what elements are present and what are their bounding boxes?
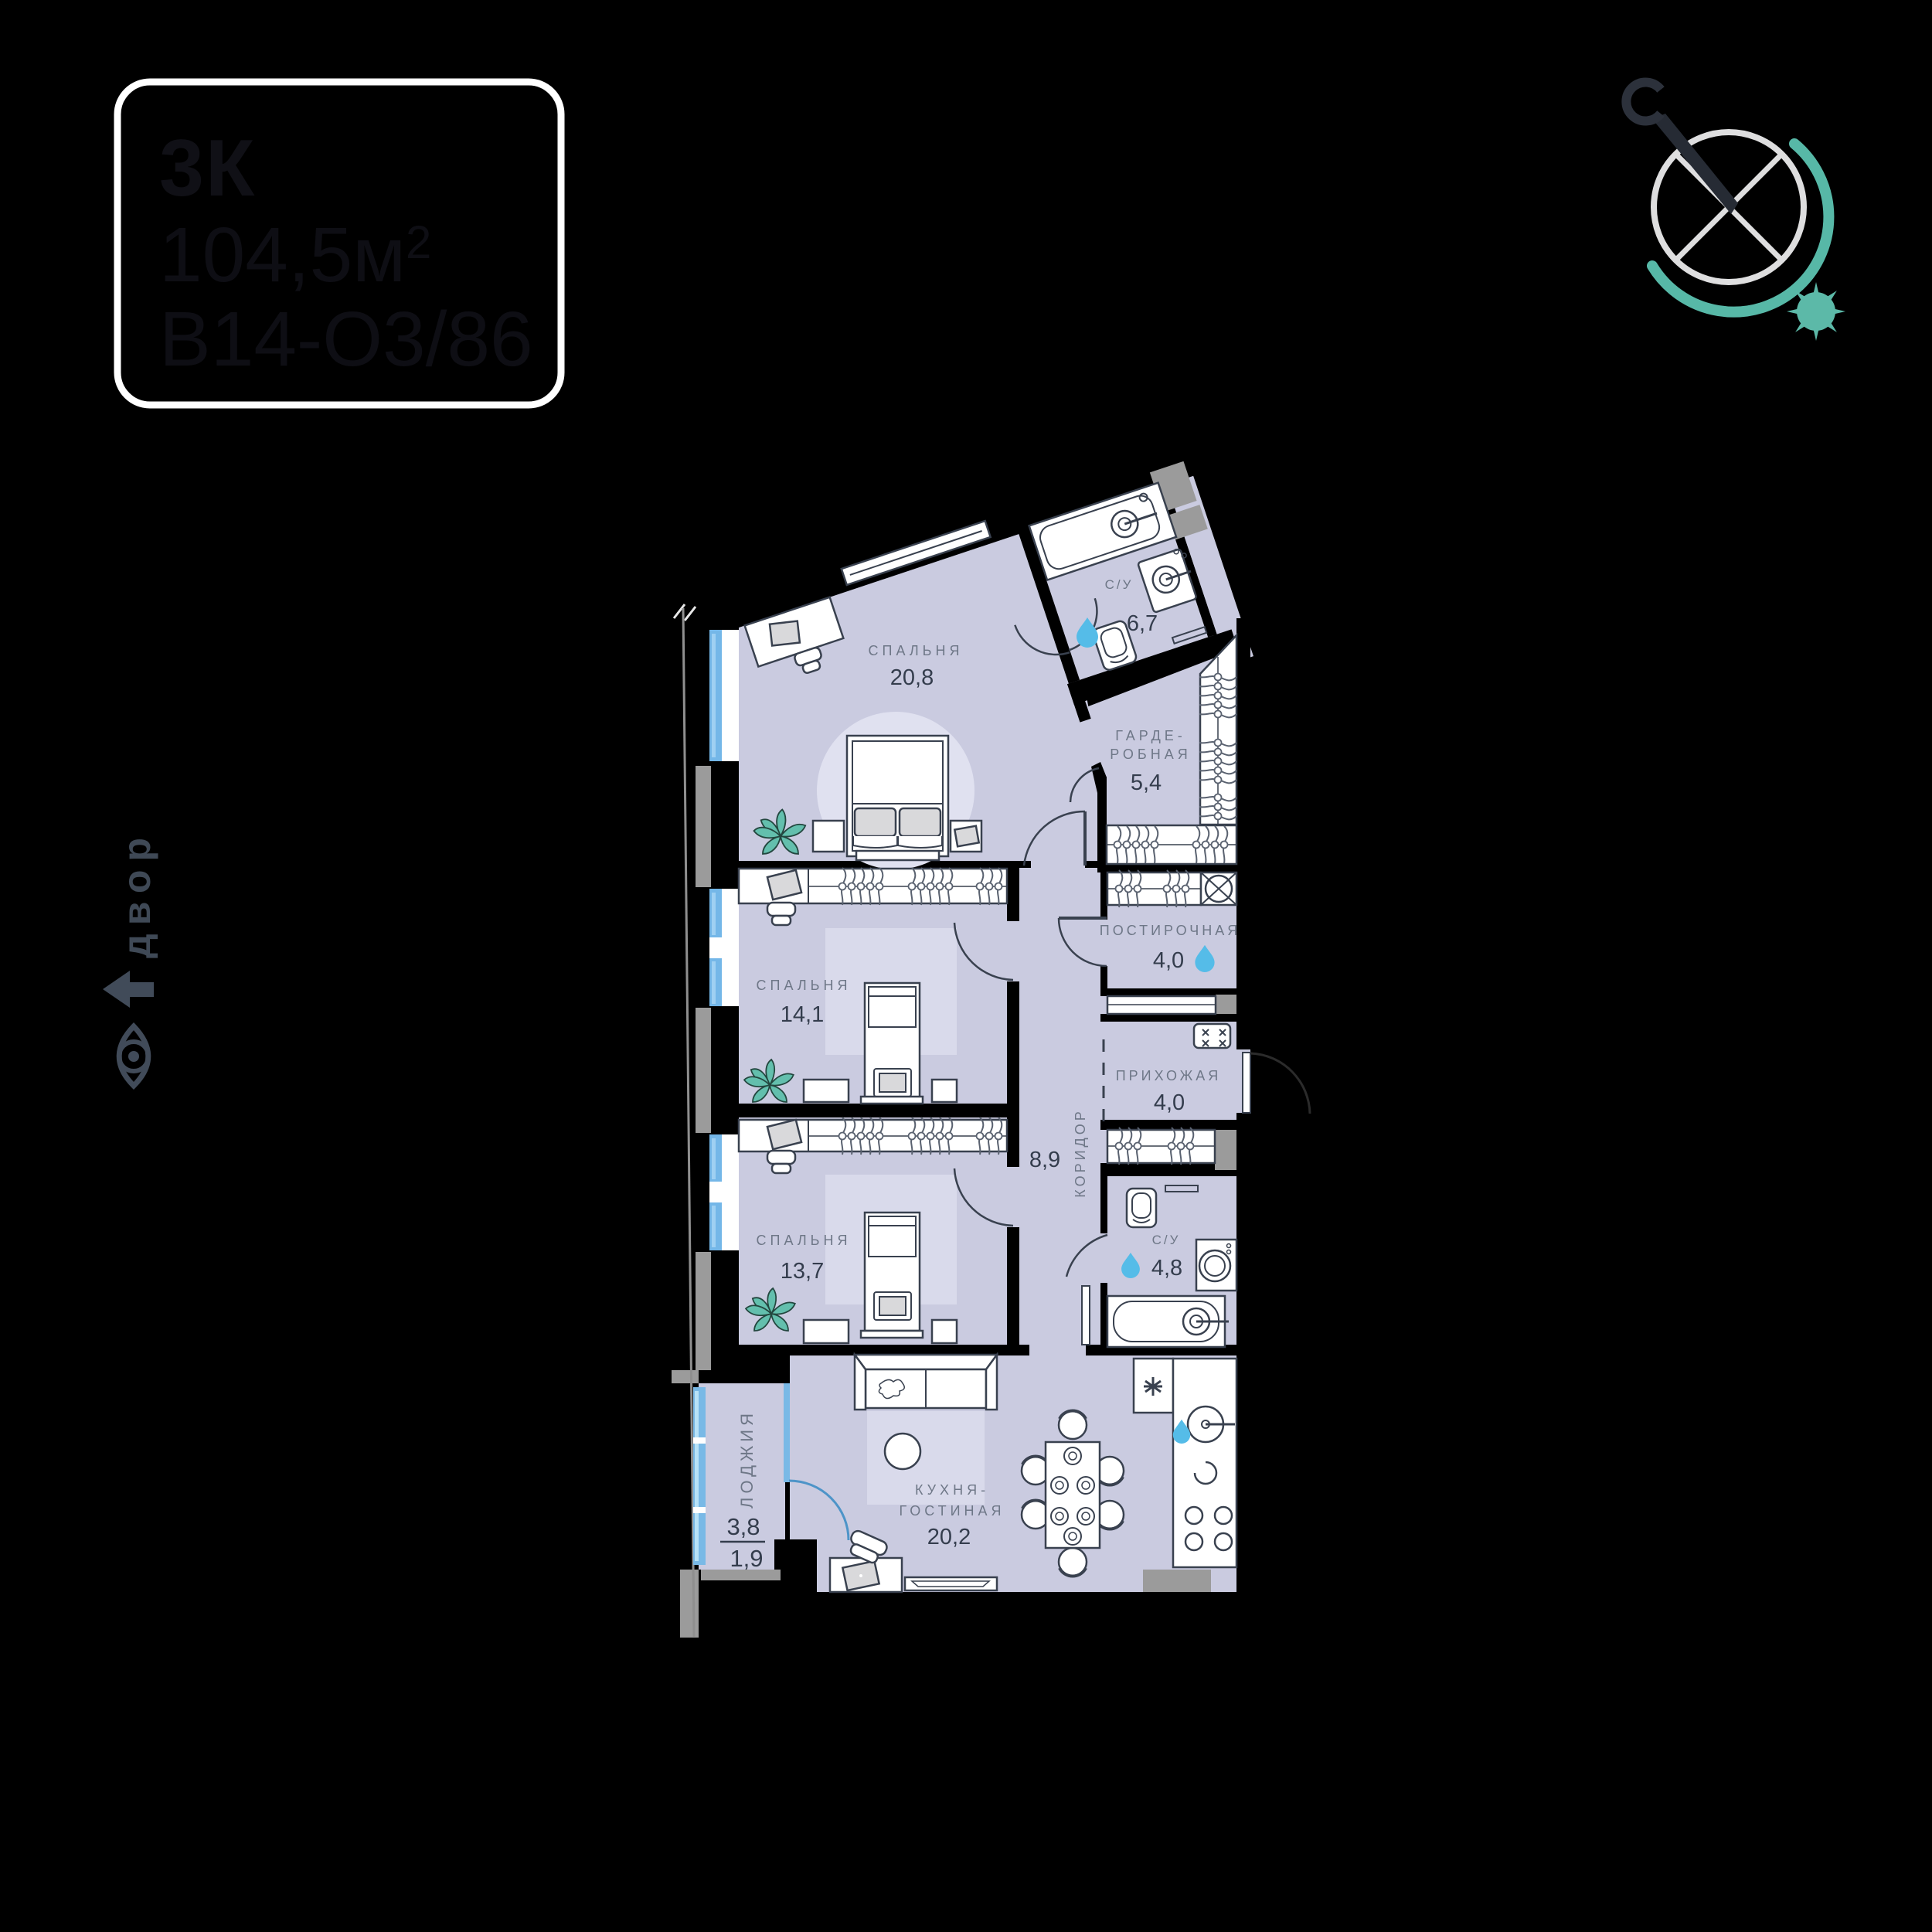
svg-text:3,8: 3,8 — [726, 1513, 760, 1540]
svg-text:КОРИДОР: КОРИДОР — [1073, 1108, 1088, 1197]
svg-text:104,5м2: 104,5м2 — [159, 212, 431, 298]
svg-text:8,9: 8,9 — [1029, 1148, 1060, 1172]
svg-text:20,2: 20,2 — [927, 1525, 971, 1549]
svg-text:ЛОДЖИЯ: ЛОДЖИЯ — [737, 1410, 757, 1509]
svg-text:4,0: 4,0 — [1154, 1090, 1185, 1115]
svg-text:РОБНАЯ: РОБНАЯ — [1110, 747, 1191, 762]
svg-text:ПРИХОЖАЯ: ПРИХОЖАЯ — [1116, 1068, 1222, 1083]
svg-text:двор: двор — [115, 829, 158, 958]
svg-text:6,7: 6,7 — [1127, 611, 1158, 636]
svg-text:С/У: С/У — [1152, 1233, 1181, 1247]
svg-text:В14-О3/86: В14-О3/86 — [159, 296, 533, 383]
svg-text:СПАЛЬНЯ: СПАЛЬНЯ — [869, 643, 964, 658]
svg-text:ГАРДЕ-: ГАРДЕ- — [1115, 728, 1186, 743]
svg-text:1,9: 1,9 — [730, 1545, 763, 1572]
svg-text:14,1: 14,1 — [781, 1002, 824, 1027]
svg-text:5,4: 5,4 — [1131, 770, 1162, 795]
svg-text:СПАЛЬНЯ: СПАЛЬНЯ — [757, 978, 852, 993]
svg-text:4,0: 4,0 — [1153, 948, 1184, 973]
svg-text:ПОСТИРОЧНАЯ: ПОСТИРОЧНАЯ — [1100, 923, 1241, 938]
svg-text:4,8: 4,8 — [1151, 1256, 1182, 1281]
svg-text:С/У: С/У — [1105, 577, 1134, 592]
svg-text:КУХНЯ-: КУХНЯ- — [915, 1482, 989, 1498]
svg-text:ГОСТИНАЯ: ГОСТИНАЯ — [899, 1503, 1005, 1519]
svg-text:20,8: 20,8 — [890, 665, 934, 690]
svg-text:3К: 3К — [159, 124, 256, 213]
svg-text:СПАЛЬНЯ: СПАЛЬНЯ — [757, 1233, 852, 1248]
svg-text:13,7: 13,7 — [781, 1259, 824, 1284]
